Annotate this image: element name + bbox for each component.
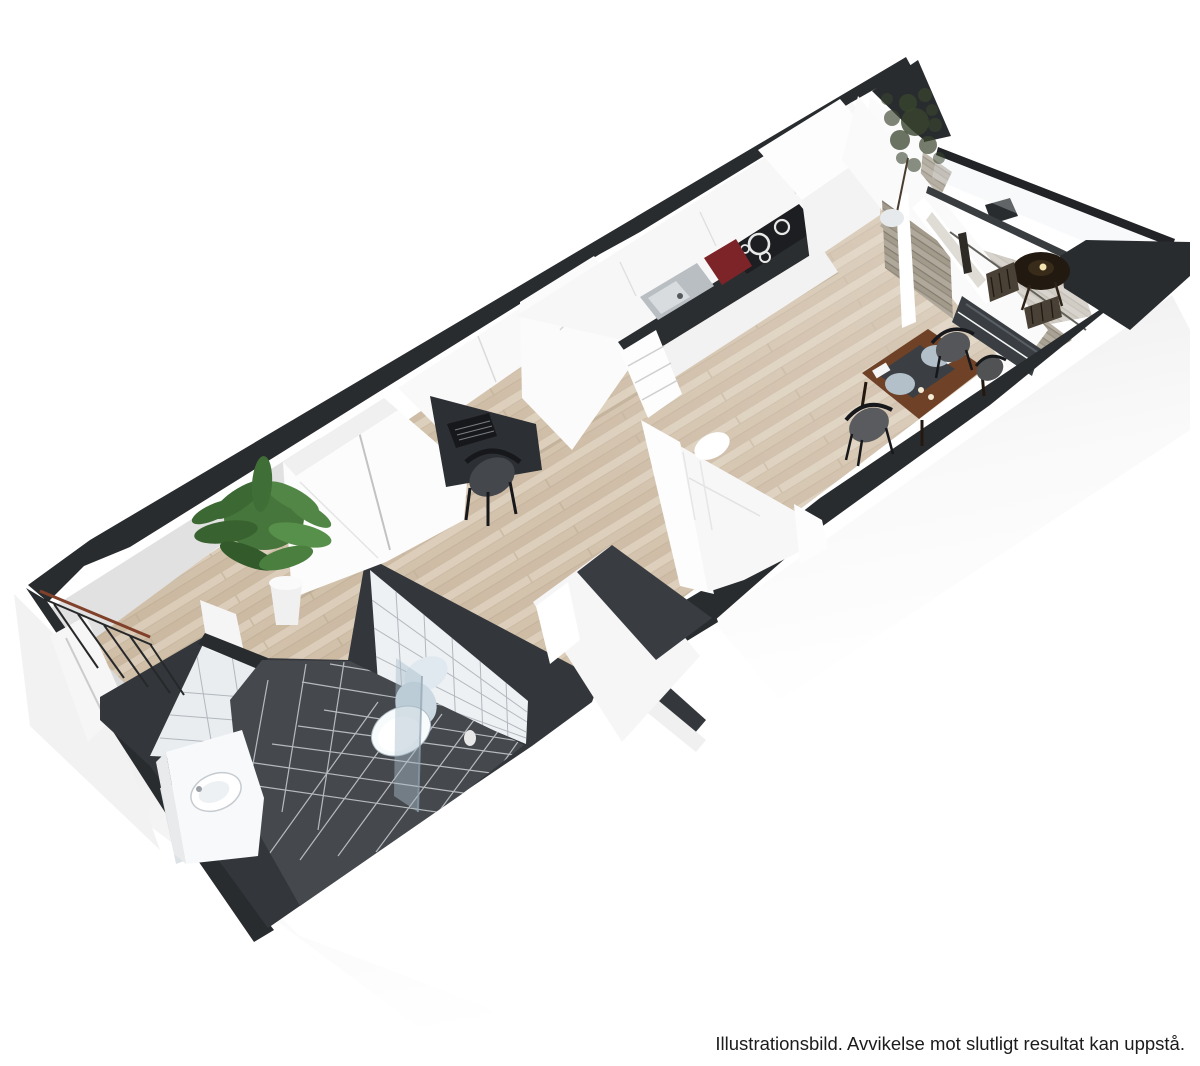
svg-text:Illustrationsbild. Avvikelse m: Illustrationsbild. Avvikelse mot slutlig…: [715, 1033, 1185, 1054]
